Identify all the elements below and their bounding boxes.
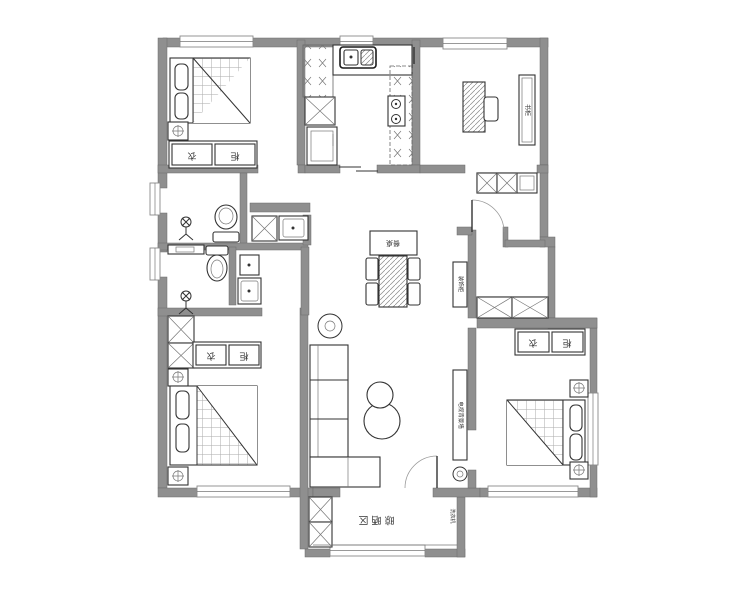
- nightstand: [570, 380, 588, 397]
- tv-wall: 电视背景墙: [453, 370, 467, 460]
- corner-cabinet: [305, 97, 335, 125]
- bookshelf-label: 书柜: [524, 104, 532, 116]
- drying-area-label: 晾晒区: [356, 514, 395, 527]
- dining-chair: [366, 283, 378, 305]
- wardrobe: 衣 柜: [515, 329, 585, 355]
- wardrobe: 衣 柜: [169, 141, 257, 168]
- x-cabinet: [309, 497, 332, 547]
- dining-table-label: 餐桌: [386, 239, 400, 248]
- bed: [507, 400, 585, 465]
- vanity-counter: [168, 245, 204, 254]
- study-room: 书柜: [463, 75, 535, 145]
- bathroom-lower: [168, 245, 261, 314]
- sink: [340, 47, 376, 68]
- window: [150, 248, 160, 280]
- pillow: [176, 391, 189, 419]
- bedroom-bottom-right: 衣 柜: [507, 329, 588, 479]
- toilet: [213, 205, 239, 242]
- dining-area: 餐桌: [366, 231, 420, 307]
- bedroom-top-left: 衣 柜: [168, 58, 257, 168]
- bed: [170, 58, 250, 123]
- window: [488, 486, 578, 497]
- wardrobe-label: 柜: [562, 337, 571, 349]
- storage-cabinet: [477, 297, 548, 318]
- window: [330, 545, 425, 556]
- dining-chair: [366, 258, 378, 280]
- stove: [388, 96, 405, 126]
- x-cabinet: [252, 216, 277, 241]
- wardrobe: 衣 柜: [193, 342, 261, 368]
- x-cabinet: [168, 316, 194, 368]
- dining-bench: 餐桌: [370, 231, 417, 255]
- window: [197, 486, 290, 497]
- balcony-door-arc: [405, 456, 437, 488]
- dining-chair: [408, 283, 420, 305]
- nightstand: [168, 122, 188, 140]
- wardrobe-label: 衣: [187, 150, 196, 162]
- kitchen-counter: [303, 45, 333, 97]
- washing-machine-label: 洗衣机: [449, 508, 456, 523]
- living-room: 电视背景墙: [310, 314, 467, 487]
- balcony: 晾晒区 洗衣机: [309, 497, 457, 547]
- plant: [453, 467, 467, 481]
- dining-table: [379, 256, 407, 307]
- pillow: [176, 424, 189, 452]
- nightstand: [168, 369, 188, 386]
- entry-cabinet-label: 装饰柜: [457, 276, 465, 293]
- wardrobe-label: 衣: [528, 337, 537, 349]
- shoe-cabinet: [477, 173, 537, 193]
- wardrobe-label: 柜: [230, 150, 239, 162]
- kitchen: [303, 45, 412, 165]
- pillow: [570, 434, 582, 460]
- nightstand: [570, 462, 588, 479]
- chair: [484, 97, 498, 121]
- bedroom-bottom-left: 衣 柜: [168, 316, 261, 485]
- coffee-table: [364, 382, 400, 439]
- bed: [170, 386, 257, 465]
- basin: [240, 255, 259, 275]
- dining-chair: [408, 258, 420, 280]
- entry-cabinet: 装饰柜: [453, 262, 467, 307]
- wardrobe-label: 柜: [239, 350, 248, 362]
- floor-plan-canvas: 衣 柜: [0, 0, 740, 592]
- fridge: [307, 127, 337, 165]
- washing-machine-box: [238, 278, 261, 304]
- pillow: [175, 93, 188, 119]
- kitchen-sliding-door: [339, 167, 378, 171]
- floor-plan-drawing: 衣 柜: [0, 0, 740, 592]
- pillow: [175, 64, 188, 90]
- window: [443, 38, 507, 49]
- window: [150, 183, 160, 215]
- pillow: [570, 405, 582, 431]
- tv-wall-label: 电视背景墙: [457, 401, 465, 429]
- entry-door-arc: [472, 200, 504, 232]
- desk: [463, 82, 485, 132]
- plant: [318, 314, 342, 338]
- bookshelf: 书柜: [519, 75, 535, 145]
- window: [180, 36, 253, 47]
- washing-machine-box: [279, 216, 308, 240]
- window: [588, 393, 598, 465]
- shower-icon: [179, 217, 193, 240]
- toilet: [206, 246, 228, 281]
- wardrobe-label: 衣: [206, 350, 215, 362]
- nightstand: [168, 467, 188, 485]
